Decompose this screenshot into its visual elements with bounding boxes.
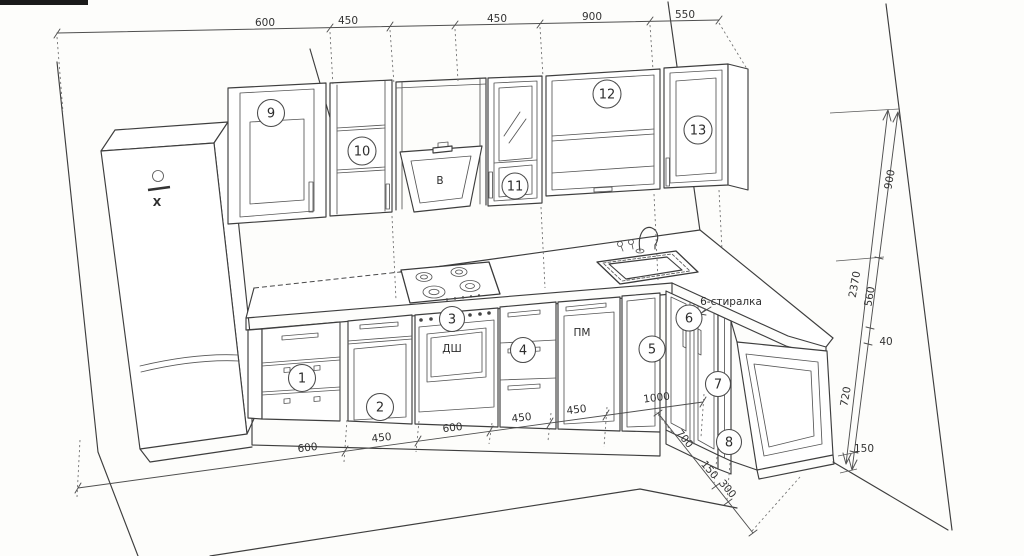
dim-top-450b: 450 [487, 13, 507, 25]
dim-top-600: 600 [255, 17, 275, 29]
floor-line-right [833, 462, 948, 530]
svg-text:4: 4 [519, 344, 527, 359]
svg-text:12: 12 [599, 88, 616, 103]
floor-line [210, 489, 737, 556]
callout-11: 11 [502, 173, 528, 199]
dim-return-300: 300 [716, 478, 738, 501]
callout-2: 2 [367, 394, 394, 421]
dim-bottom-600b: 600 [442, 421, 463, 435]
svg-text:13: 13 [690, 124, 707, 139]
svg-text:1: 1 [298, 372, 306, 387]
oven-label: ДШ [442, 343, 461, 355]
kitchen-drawing-page: X [0, 0, 1024, 556]
dim-top-450a: 450 [338, 15, 358, 27]
washer-note-label: 6-стиралка [700, 296, 762, 308]
callout-12: 12 [593, 80, 621, 108]
dim-top-550: 550 [675, 9, 695, 21]
end-panel [248, 329, 262, 419]
dim-right-900: 900 [882, 169, 897, 191]
dim-right-40: 40 [879, 336, 892, 348]
dim-bottom-600a: 600 [297, 441, 318, 455]
dishwasher-label: ПМ [574, 327, 591, 339]
callout-1: 1 [289, 365, 316, 392]
callout-4: 4 [511, 338, 536, 363]
dim-right-150: 150 [854, 443, 874, 455]
callout-9: 9 [258, 100, 285, 127]
dim-top-900: 900 [582, 11, 602, 23]
callout-5: 5 [639, 336, 665, 362]
dim-right-560: 560 [862, 286, 877, 308]
callout-6: 6 [676, 305, 702, 331]
hood-section: В [396, 78, 486, 212]
callout-3: 3 [440, 307, 465, 332]
svg-text:11: 11 [507, 180, 524, 195]
base-cabinet-5 [622, 293, 660, 432]
svg-text:9: 9 [267, 107, 275, 122]
callout-7: 7 [706, 372, 731, 397]
callout-8: 8 [717, 430, 742, 455]
svg-text:2: 2 [376, 401, 384, 416]
svg-text:7: 7 [714, 378, 722, 393]
svg-text:3: 3 [448, 313, 456, 328]
dim-return-150: 150 [698, 459, 720, 482]
right-dimension-chain: 900 2370 560 40 720 150 [830, 109, 901, 473]
svg-text:6: 6 [685, 312, 693, 327]
base-cabinet-4-drawers [500, 302, 556, 429]
kitchen-sketch: X [0, 0, 1024, 556]
dim-right-720: 720 [838, 386, 853, 408]
callout-10: 10 [348, 137, 376, 165]
svg-text:8: 8 [725, 436, 733, 451]
dim-bottom-450b: 450 [511, 411, 532, 425]
wall-cabinets: В [228, 64, 748, 224]
dim-bottom-450a: 450 [371, 431, 392, 445]
svg-text:5: 5 [648, 343, 656, 358]
scan-artifact [0, 0, 88, 5]
svg-text:10: 10 [354, 145, 371, 160]
fridge-mark-label: X [153, 196, 162, 209]
dim-right-2370: 2370 [847, 270, 863, 298]
hood-label: В [436, 175, 443, 187]
callout-13: 13 [684, 116, 712, 144]
dim-bottom-450c: 450 [566, 403, 587, 417]
